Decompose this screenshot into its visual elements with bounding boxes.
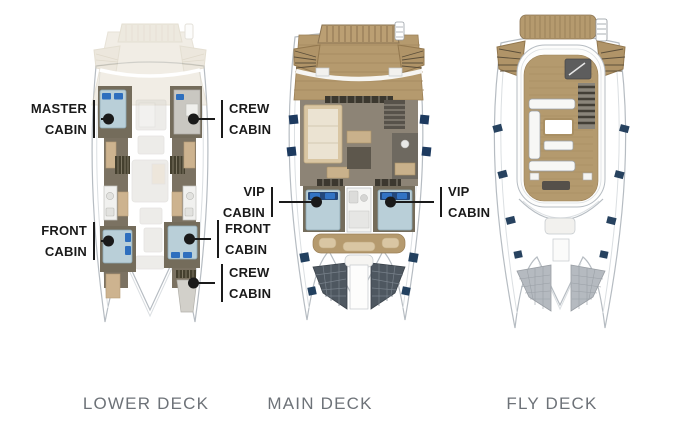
- deck-title-lower-deck: LOWER DECK: [83, 394, 209, 414]
- callout-tick: [221, 264, 223, 302]
- callout-tick: [221, 100, 223, 138]
- flybridge-stairs: [578, 83, 595, 129]
- starboard-bathroom: [183, 186, 196, 220]
- flybridge-table: [544, 119, 573, 135]
- callout-label-line1: CREW: [229, 98, 271, 119]
- salon-stairs: [384, 100, 405, 129]
- callout-vip-cabin-port: VIP CABIN: [207, 181, 317, 223]
- callout-dot: [385, 197, 396, 208]
- callout-crew-cabin-upper-label: CREW CABIN: [229, 98, 271, 140]
- callout-crew-cabin-lower-label: CREW CABIN: [229, 262, 271, 304]
- callout-leader-line: [189, 238, 211, 240]
- ladder: [596, 19, 607, 41]
- callout-label-line2: CABIN: [229, 283, 271, 304]
- callout-label-line1: MASTER: [29, 98, 87, 119]
- fly-deck-plan: [487, 13, 635, 345]
- salon-island: [347, 131, 371, 169]
- callout-label-line2: CABIN: [29, 241, 87, 262]
- main-deck-plan: [283, 13, 435, 345]
- callout-label-line2: CABIN: [29, 119, 87, 140]
- callout-leader-line: [279, 201, 317, 203]
- callout-dot: [103, 236, 114, 247]
- callout-leader-line: [101, 240, 109, 242]
- callout-tick: [217, 220, 219, 258]
- salon-sofa: [304, 105, 342, 163]
- main-deck-cockpit: [313, 234, 405, 253]
- callout-crew-cabin-lower: CREW CABIN: [193, 262, 271, 304]
- flybridge-grill: [565, 59, 591, 79]
- callout-tick: [93, 222, 95, 260]
- callout-vip-cabin-port-label: VIP CABIN: [207, 181, 265, 223]
- callout-vip-cabin-starboard: VIP CABIN: [390, 181, 490, 223]
- callout-crew-cabin-upper: CREW CABIN: [193, 98, 271, 140]
- main-deck-aft-deck: [294, 22, 424, 100]
- port-stair-hatch: [115, 156, 130, 174]
- main-deck-salon: [300, 96, 418, 186]
- callout-dot: [188, 278, 199, 289]
- callout-label-line2: CABIN: [448, 202, 490, 223]
- callout-dot: [103, 114, 114, 125]
- callout-master-cabin-label: MASTER CABIN: [29, 98, 87, 140]
- port-bathroom: [104, 186, 117, 220]
- callout-label-line2: CABIN: [225, 239, 271, 260]
- callout-label-line1: CREW: [229, 262, 271, 283]
- salon-galley: [392, 133, 418, 179]
- port-aft-furniture: [106, 274, 120, 298]
- callout-tick: [271, 187, 273, 217]
- salon-door-track: [325, 96, 393, 103]
- deck-title-main-deck: MAIN DECK: [267, 394, 372, 414]
- vip-bathroom: [347, 188, 371, 232]
- trampoline-port: [313, 263, 347, 309]
- callout-label-line1: FRONT: [29, 220, 87, 241]
- callout-front-cabin-starboard: FRONT CABIN: [189, 218, 271, 260]
- callout-label-line1: VIP: [207, 181, 265, 202]
- callout-dot: [311, 197, 322, 208]
- callout-tick: [440, 187, 442, 217]
- fly-deck-top-platform: [520, 15, 607, 41]
- callout-front-cabin-starboard-label: FRONT CABIN: [225, 218, 271, 260]
- callout-tick: [93, 100, 95, 138]
- deck-title-fly-deck: FLY DECK: [506, 394, 597, 414]
- callout-leader-line: [390, 201, 434, 203]
- starboard-stair-hatch: [170, 156, 185, 174]
- callout-dot: [184, 234, 195, 245]
- callout-front-cabin-port-label: FRONT CABIN: [29, 220, 87, 262]
- callout-label-line2: CABIN: [207, 202, 265, 223]
- callout-leader-line: [193, 118, 215, 120]
- callout-leader-line: [193, 282, 215, 284]
- callout-leader-line: [101, 118, 109, 120]
- callout-label-line2: CABIN: [229, 119, 271, 140]
- yacht-deck-plans-diagram: MASTER CABIN CREW CABIN FRONT CABIN: [0, 0, 700, 427]
- flybridge: [517, 45, 605, 207]
- callout-master-cabin: MASTER CABIN: [29, 98, 109, 140]
- callout-vip-cabin-starboard-label: VIP CABIN: [448, 181, 490, 223]
- callout-label-line1: VIP: [448, 181, 490, 202]
- callout-front-cabin-port: FRONT CABIN: [29, 220, 109, 262]
- callout-dot: [188, 114, 199, 125]
